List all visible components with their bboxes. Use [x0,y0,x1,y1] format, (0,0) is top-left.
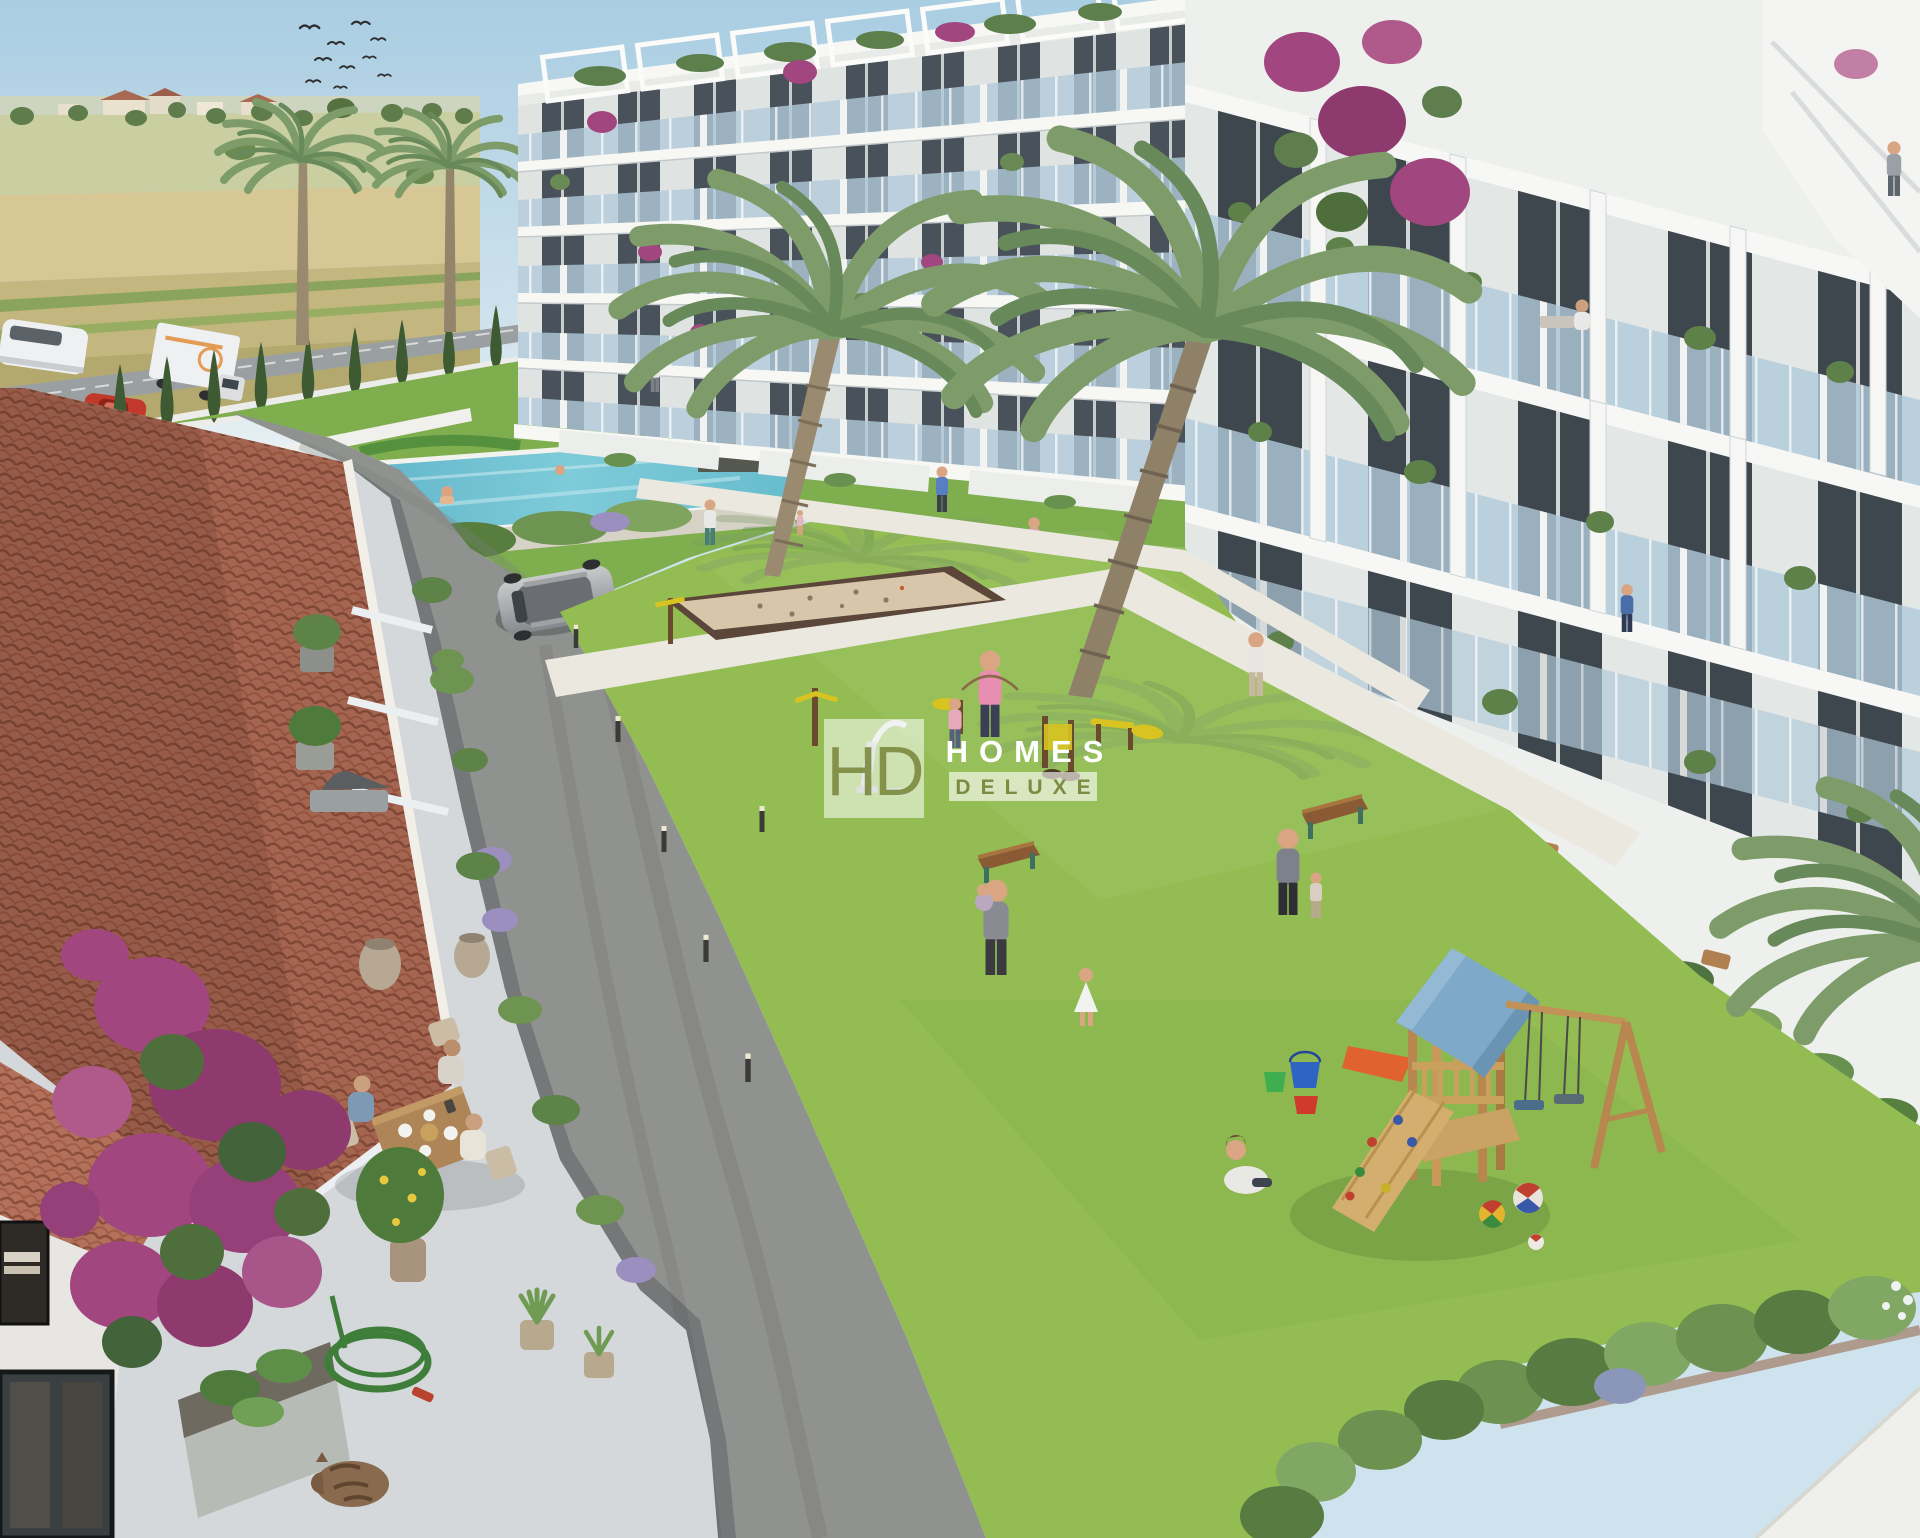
watermark-subtitle: DELUXE [955,776,1100,799]
render-image: HD HOMES DELUXE [0,0,1920,1538]
watermark-title: HOMES [946,734,1115,769]
hd-monogram: HD [826,732,922,810]
